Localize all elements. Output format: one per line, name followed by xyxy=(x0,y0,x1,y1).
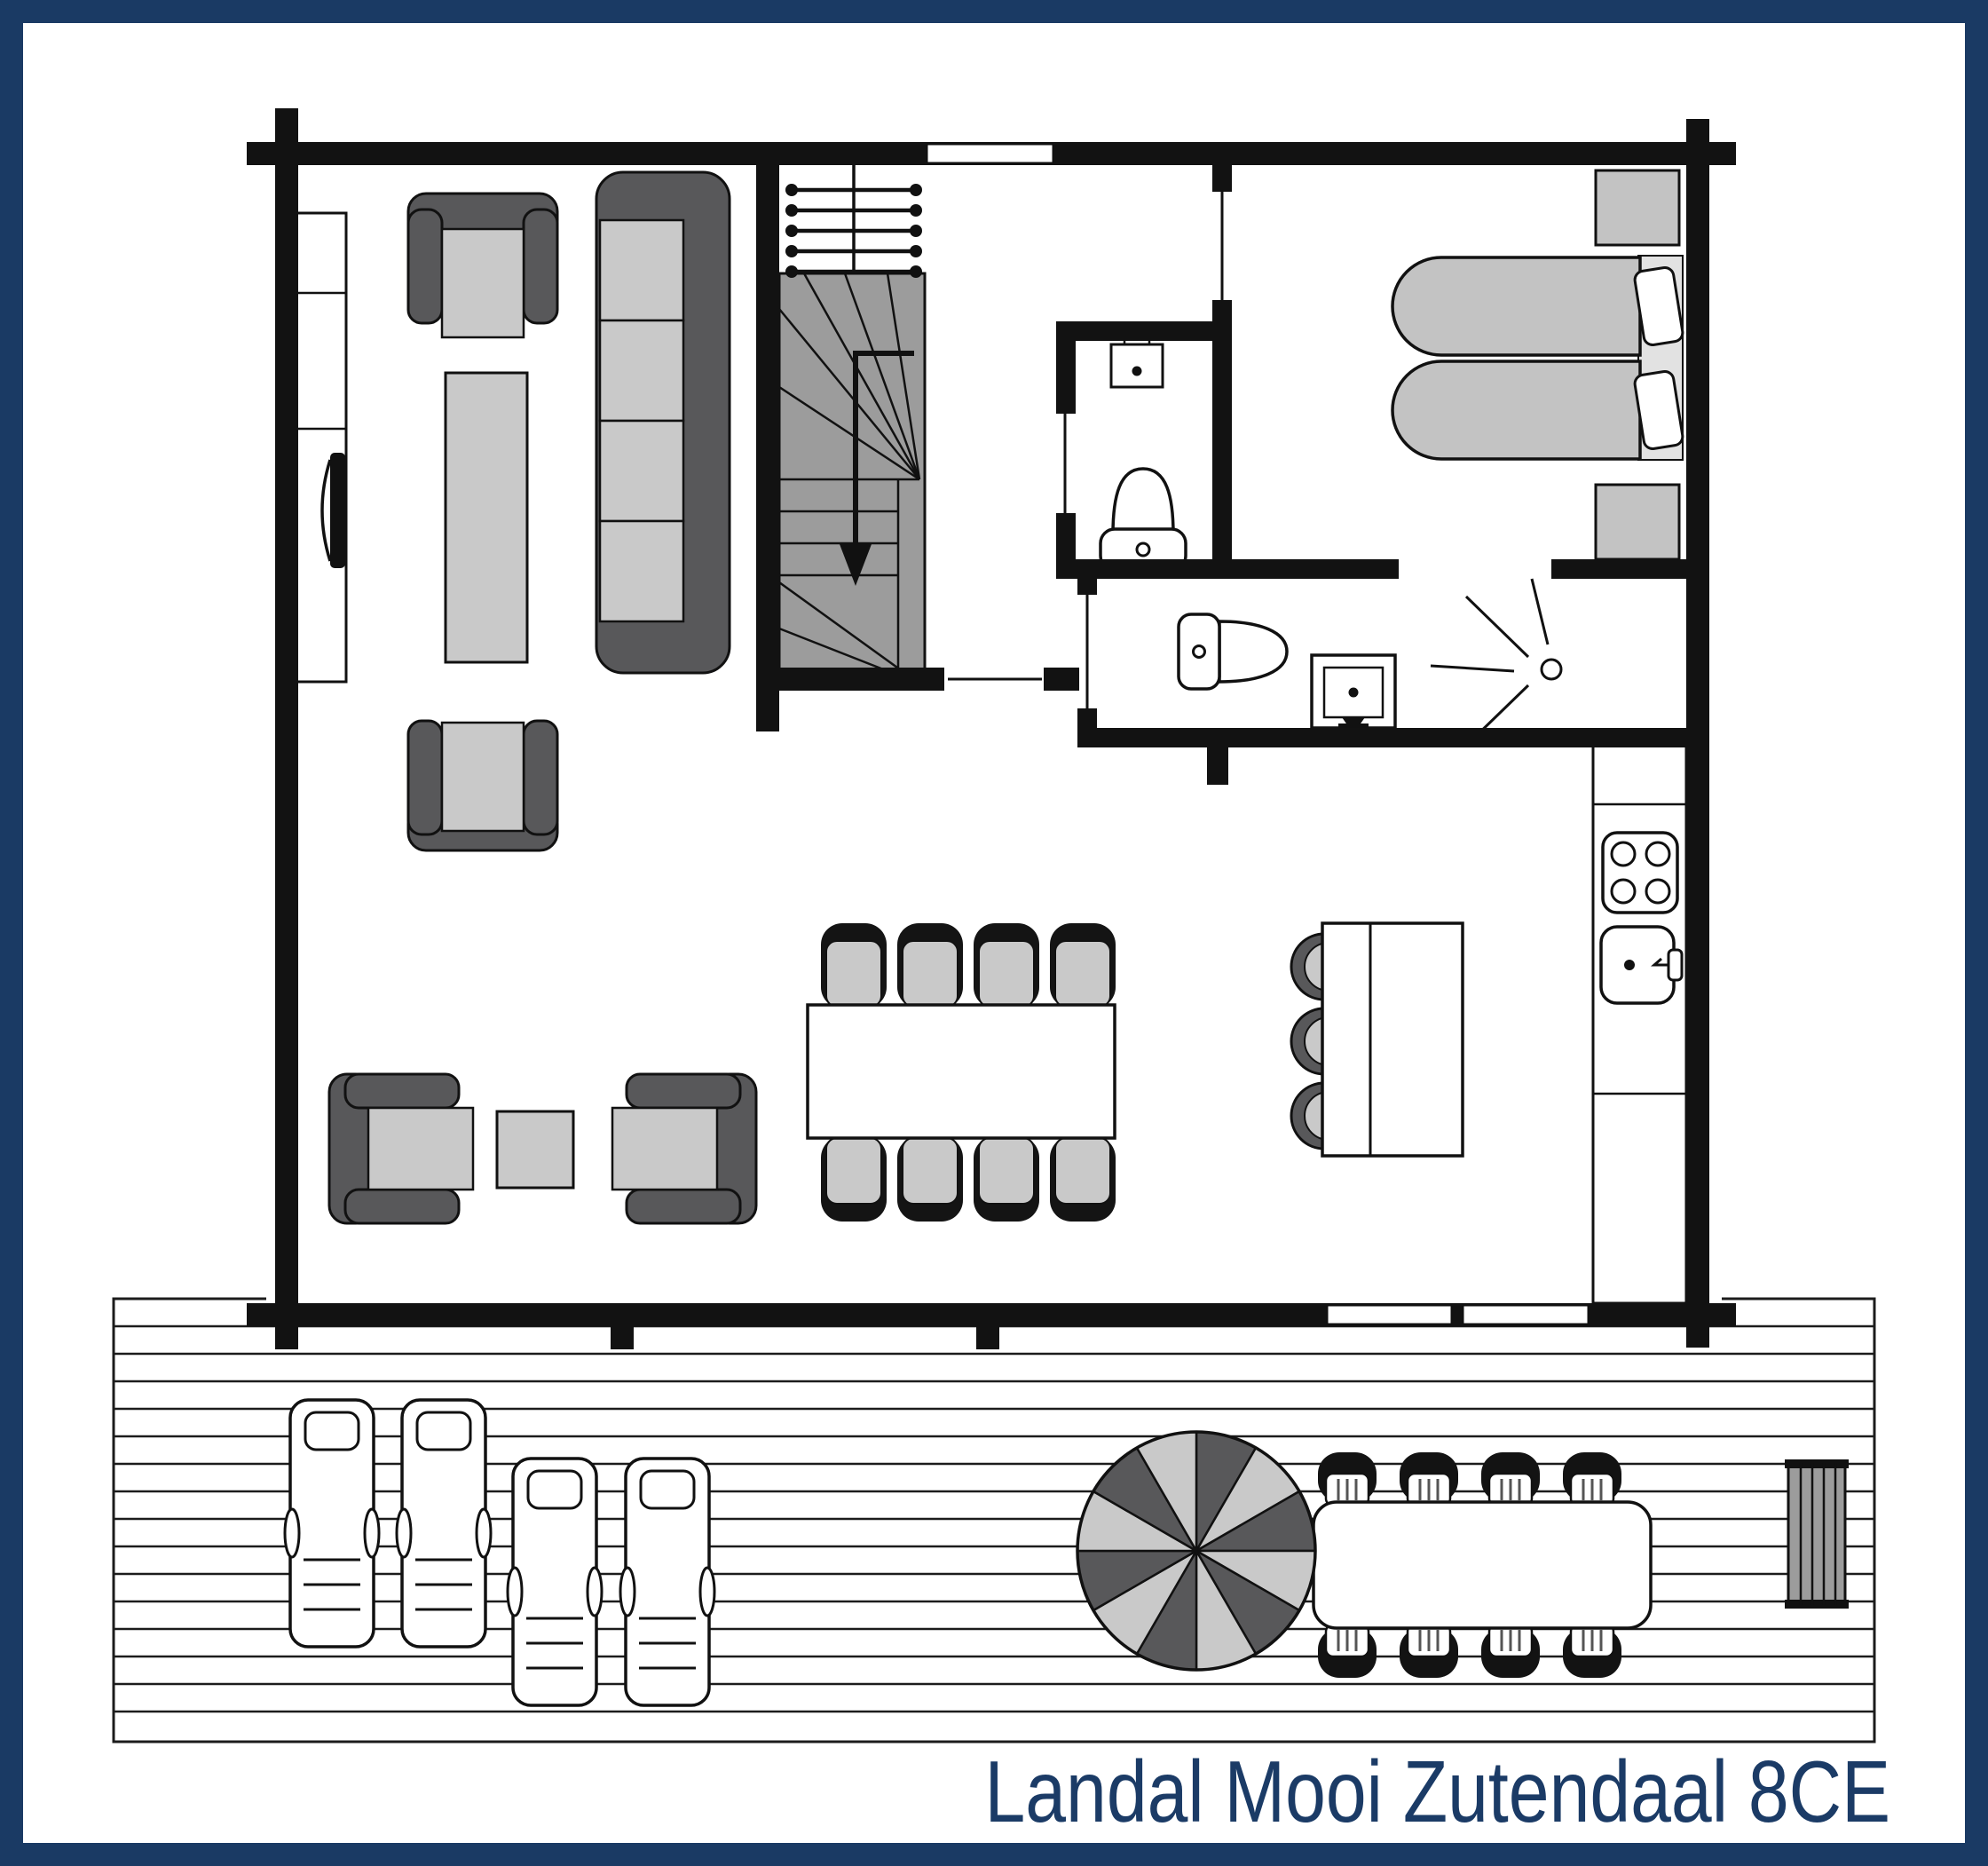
wall-bedroom-west-lower xyxy=(1212,300,1232,579)
side-table xyxy=(497,1111,573,1188)
border-top xyxy=(0,0,1988,23)
floor-plan: Landal Mooi Zutendaal 8CE xyxy=(0,0,1988,1866)
border-bottom xyxy=(0,1843,1988,1866)
bed-duvet-2 xyxy=(1392,361,1640,459)
sun-lounger-2 xyxy=(397,1400,491,1647)
sink-icon xyxy=(1601,927,1682,1003)
nightstand-bottom xyxy=(1596,485,1679,559)
hand-basin-icon xyxy=(1111,336,1163,387)
sun-lounger-4 xyxy=(620,1459,714,1705)
border-left xyxy=(0,0,23,1866)
tv-cabinet xyxy=(296,213,346,682)
armchair-right xyxy=(612,1074,756,1223)
wall-bedroom-bottom-west xyxy=(1232,559,1399,579)
wall-bedroom-bottom-east xyxy=(1551,559,1709,579)
wall-wc-top xyxy=(1056,321,1232,341)
sun-lounger-3 xyxy=(508,1459,602,1705)
dining-set xyxy=(808,923,1116,1222)
wall-left xyxy=(275,108,298,1349)
wall-hall-bottom-left xyxy=(756,668,944,691)
floor-plan-page: Landal Mooi Zutendaal 8CE xyxy=(0,0,1988,1866)
wall-corridor-stub-top xyxy=(1077,579,1097,595)
window-terrace-right xyxy=(1463,1305,1589,1324)
border-right xyxy=(1965,0,1988,1866)
armchair-left xyxy=(329,1074,473,1223)
window-terrace-left xyxy=(1327,1305,1452,1324)
washbasin-icon xyxy=(1312,655,1395,729)
bar-table xyxy=(1322,923,1463,1156)
outdoor-table xyxy=(1313,1502,1651,1628)
kitchen-counter xyxy=(1593,742,1686,1303)
wall-wc-bottom xyxy=(1056,559,1232,579)
bed-duvet-1 xyxy=(1392,257,1640,355)
kitchen xyxy=(1593,742,1686,1303)
wall-pillar-bath xyxy=(1207,747,1228,785)
wall-living-hall xyxy=(756,165,779,689)
sun-lounger-1 xyxy=(285,1400,379,1647)
coffee-table xyxy=(446,373,527,662)
wall-pillar-hall xyxy=(756,691,779,731)
wall-corridor-stub-bottom xyxy=(1077,708,1097,728)
hob-icon xyxy=(1603,833,1677,913)
wall-bedroom-west-upper xyxy=(1212,165,1232,192)
planter-bench xyxy=(1785,1459,1849,1609)
parasol-icon xyxy=(1077,1432,1315,1670)
wall-hall-bottom-right xyxy=(1044,668,1079,691)
plan-title: Landal Mooi Zutendaal 8CE xyxy=(984,1743,1890,1840)
nightstand-top xyxy=(1596,170,1679,245)
wall-pillar-deck-1 xyxy=(611,1326,634,1349)
dining-table xyxy=(808,1005,1115,1138)
wall-pillar-deck-2 xyxy=(976,1326,999,1349)
armchair-top xyxy=(408,194,557,337)
outdoor-dining-set xyxy=(1313,1452,1651,1678)
window-hall-top xyxy=(927,144,1053,163)
sofa xyxy=(596,172,730,673)
bar-set xyxy=(1291,923,1463,1156)
armchair-middle xyxy=(408,721,557,850)
wall-bathroom-bottom xyxy=(1077,728,1709,747)
